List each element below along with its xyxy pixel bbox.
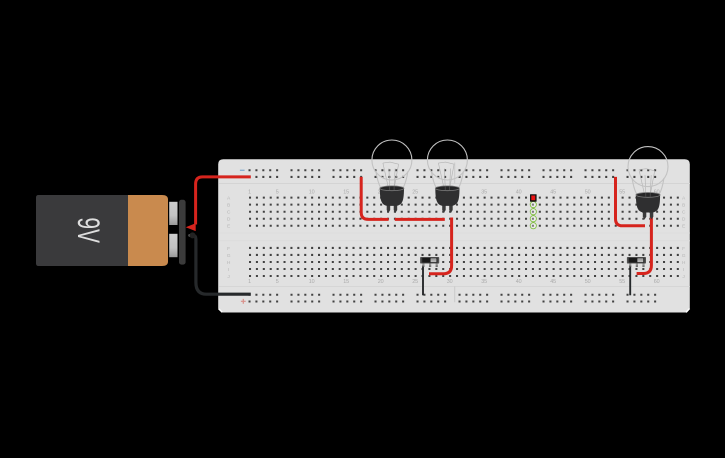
svg-text:H: H [227, 260, 231, 266]
svg-text:35: 35 [481, 279, 487, 285]
svg-text:D: D [227, 217, 231, 223]
svg-text:50: 50 [585, 189, 591, 195]
svg-text:40: 40 [516, 189, 522, 195]
svg-text:I: I [683, 267, 684, 273]
svg-text:1: 1 [248, 279, 251, 285]
svg-text:20: 20 [378, 279, 384, 285]
svg-text:30: 30 [447, 279, 453, 285]
svg-text:I: I [228, 267, 229, 273]
svg-text:C: C [682, 210, 686, 216]
svg-text:F: F [227, 246, 230, 252]
svg-text:10: 10 [309, 279, 315, 285]
svg-text:H: H [682, 260, 686, 266]
svg-text:D: D [682, 217, 686, 223]
svg-text:50: 50 [585, 279, 591, 285]
svg-text:15: 15 [343, 189, 349, 195]
svg-text:G: G [682, 253, 686, 259]
svg-text:1: 1 [248, 189, 251, 195]
svg-text:15: 15 [343, 279, 349, 285]
svg-text:60: 60 [654, 279, 660, 285]
svg-text:B: B [227, 203, 230, 209]
svg-text:G: G [227, 253, 231, 259]
svg-text:5: 5 [276, 279, 279, 285]
svg-text:45: 45 [550, 279, 556, 285]
svg-text:F: F [682, 246, 685, 252]
svg-text:C: C [227, 210, 231, 216]
svg-text:45: 45 [550, 189, 556, 195]
svg-text:40: 40 [516, 279, 522, 285]
svg-text:35: 35 [481, 189, 487, 195]
svg-text:25: 25 [412, 279, 418, 285]
svg-text:55: 55 [619, 279, 625, 285]
svg-text:B: B [682, 203, 685, 209]
svg-text:9V: 9V [71, 217, 106, 243]
svg-text:5: 5 [276, 189, 279, 195]
svg-text:55: 55 [619, 189, 625, 195]
svg-text:25: 25 [412, 189, 418, 195]
svg-text:10: 10 [309, 189, 315, 195]
